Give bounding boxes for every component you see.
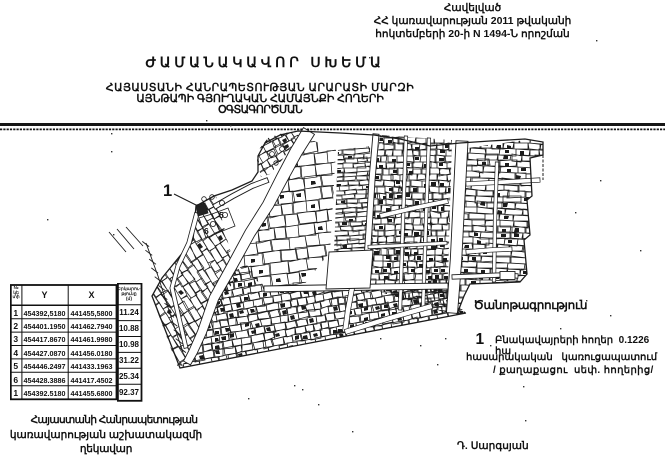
svg-text:6: 6 xyxy=(204,226,209,236)
svg-text:5: 5 xyxy=(219,210,224,220)
svg-text:1: 1 xyxy=(163,182,172,200)
